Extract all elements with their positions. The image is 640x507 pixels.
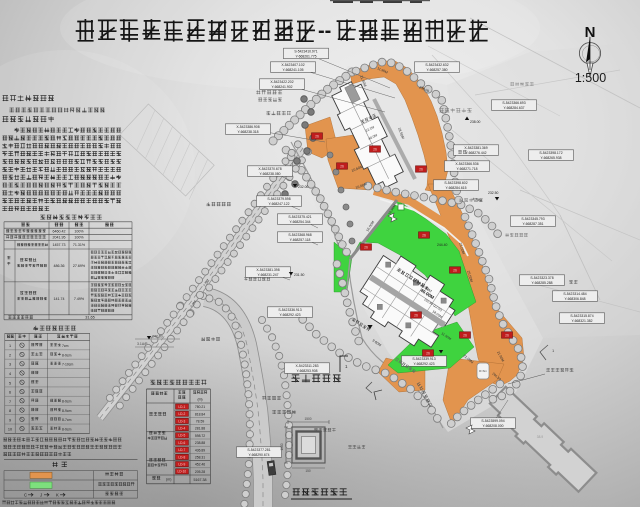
svg-text:8-9cm: 8-9cm [62,400,72,404]
svg-text:141.74: 141.74 [54,297,65,301]
svg-text:X-5423366.536: X-5423366.536 [455,162,478,166]
svg-text:6: 6 [9,391,11,395]
svg-text:S-5423323.378: S-5423323.378 [530,276,553,280]
svg-text:258.31: 258.31 [195,456,205,460]
svg-text:Y-668321.382: Y-668321.382 [572,319,593,323]
svg-text:818.84: 818.84 [195,412,205,416]
svg-text:26: 26 [463,333,467,337]
svg-text:242.30: 242.30 [152,335,163,339]
svg-text:LD-10: LD-10 [177,470,186,474]
svg-text:231.50: 231.50 [294,273,304,277]
svg-text:Y-668241.902: Y-668241.902 [272,85,293,89]
svg-text:26: 26 [505,333,509,337]
svg-text:(m): (m) [166,478,171,482]
svg-text:26: 26 [419,167,423,171]
svg-text:S-5423339.913: S-5423339.913 [412,357,435,361]
svg-text:100%: 100% [74,230,84,234]
svg-text:LD-1: LD-1 [178,405,185,409]
svg-text:X-5423381.398: X-5423381.398 [256,268,279,272]
svg-text:598.72: 598.72 [195,434,205,438]
svg-text:S-5423410.971: S-5423410.971 [294,50,317,54]
svg-text:2041.95: 2041.95 [53,236,66,240]
svg-text:Y-668231.247: Y-668231.247 [258,273,279,277]
svg-text:6460.42: 6460.42 [53,230,66,234]
svg-text:Y-668284.615: Y-668284.615 [446,186,467,190]
svg-text:Y-668257.380: Y-668257.380 [427,68,448,72]
svg-text:X-5423407.102: X-5423407.102 [281,63,304,67]
svg-text:S-5423377.281: S-5423377.281 [247,448,270,452]
svg-text:Y-668271.718: Y-668271.718 [457,167,478,171]
svg-text:K: K [56,493,59,498]
svg-text:780.21: 780.21 [195,405,205,409]
svg-text:5: 5 [9,381,11,385]
svg-text:J: J [40,493,42,498]
svg-text:436.89: 436.89 [195,448,205,452]
svg-text:X-5423311.283: X-5423311.283 [296,364,319,368]
svg-text:Y-668287.351: Y-668287.351 [523,222,544,226]
svg-text:X-5423386.908: X-5423386.908 [236,125,259,129]
svg-text:Y-668238.080: Y-668238.080 [260,172,281,176]
svg-text:26: 26 [453,268,457,272]
svg-text:26: 26 [373,147,377,151]
svg-text:3.1A/P: 3.1A/P [137,342,148,346]
svg-text:452.46: 452.46 [195,463,205,467]
svg-text:8-9cm: 8-9cm [62,409,72,413]
svg-text:238.88: 238.88 [195,441,205,445]
svg-text:1:500: 1:500 [575,71,606,85]
svg-text:Y-668257.118: Y-668257.118 [290,238,311,242]
svg-text:Y-668292.423: Y-668292.423 [280,313,301,317]
svg-text:S-5423345.793: S-5423345.793 [521,217,544,221]
svg-text:1500: 1500 [280,443,284,450]
svg-text:Y-668276.442: Y-668276.442 [466,151,487,155]
svg-text:S-5423315.874: S-5423315.874 [570,314,593,318]
svg-text:8: 8 [9,409,11,413]
svg-text:8-7cm: 8-7cm [62,418,72,422]
svg-text:Y-668290.674: Y-668290.674 [249,453,270,457]
svg-text:7-10cm: 7-10cm [62,363,73,367]
svg-text:S-5423398.602: S-5423398.602 [444,181,467,185]
svg-text:LD-6: LD-6 [178,441,185,445]
svg-text:1457.73: 1457.73 [53,243,66,247]
svg-text:31.65: 31.65 [85,316,95,320]
svg-text:Y-668247.122: Y-668247.122 [269,202,290,206]
svg-text:5167.38: 5167.38 [194,478,207,482]
svg-text:Y-668261.775: Y-668261.775 [296,54,317,58]
svg-text:Y-668306.848: Y-668306.848 [565,297,586,301]
svg-text:7.49%: 7.49% [74,297,85,301]
svg-text:244.40: 244.40 [437,243,447,247]
svg-text:7: 7 [9,400,11,404]
svg-text:S-5423368.968: S-5423368.968 [288,233,311,237]
svg-text:LD-2: LD-2 [178,412,185,416]
svg-text:78.59: 78.59 [196,420,205,424]
svg-text:Y-668238.318: Y-668238.318 [238,130,259,134]
svg-text:S-5423599.094: S-5423599.094 [481,419,504,423]
svg-text:S-5423336.913: S-5423336.913 [278,308,301,312]
svg-text:10: 10 [8,428,12,432]
svg-text:LD-7: LD-7 [178,448,185,452]
svg-text:N: N [585,24,596,41]
svg-text:26: 26 [422,233,426,237]
svg-text:Y-668292.423: Y-668292.423 [414,362,435,366]
svg-text:9: 9 [9,418,11,422]
svg-text:26: 26 [364,245,368,249]
svg-text:71.31%: 71.31% [73,243,86,247]
svg-text:--: -- [318,20,331,42]
svg-text:LD-9: LD-9 [178,463,185,467]
svg-text:238.00: 238.00 [470,120,480,124]
svg-text:LD-3: LD-3 [178,419,185,423]
svg-text:8-9cm: 8-9cm [62,427,72,431]
svg-text:486.36: 486.36 [54,264,65,268]
svg-text:X-5423381.369: X-5423381.369 [464,146,487,150]
svg-text:100%: 100% [74,236,84,240]
svg-text:C: C [24,493,27,498]
svg-text:Y-668285.288: Y-668285.288 [532,281,553,285]
svg-text:2: 2 [9,353,11,357]
svg-text:Y-668284.637: Y-668284.637 [504,106,525,110]
svg-text:281.88: 281.88 [195,427,205,431]
svg-text:Y-668208.000: Y-668208.000 [483,424,504,428]
svg-text:X-5423370.678: X-5423370.678 [258,167,281,171]
svg-text:S-5423379.598: S-5423379.598 [267,197,290,201]
svg-text:1: 1 [9,344,11,348]
svg-text:38-9: 38-9 [537,435,544,439]
svg-text:(m): (m) [197,398,202,402]
svg-text:1500: 1500 [304,417,311,421]
svg-text:LD-4: LD-4 [178,427,185,431]
svg-text:26: 26 [426,351,430,355]
svg-text:R=6m: R=6m [479,369,488,373]
svg-text:X-5423422.202: X-5423422.202 [270,80,293,84]
svg-text:Y-668265.938: Y-668265.938 [541,156,562,160]
svg-text:232.50: 232.50 [488,191,498,195]
svg-text:3: 3 [9,363,11,367]
svg-text:LD-8: LD-8 [178,455,185,459]
svg-text:S-5423366.693: S-5423366.693 [502,101,525,105]
svg-text:232.00: 232.00 [298,185,308,189]
svg-text:Y-668241.105: Y-668241.105 [283,68,304,72]
svg-text:Y-668254.344: Y-668254.344 [290,220,311,224]
svg-text:LD-5: LD-5 [178,434,185,438]
svg-text:S-5423398.172: S-5423398.172 [539,151,562,155]
svg-text:7cm: 7cm [62,344,69,348]
svg-text:Y-668253.908: Y-668253.908 [297,369,318,373]
svg-text:205.28: 205.28 [195,470,205,474]
svg-text:S-5423314.484: S-5423314.484 [563,292,586,296]
svg-text:S-5423375.421: S-5423375.421 [288,215,311,219]
svg-text:4: 4 [9,372,11,376]
svg-text:S-5423432.632: S-5423432.632 [425,63,448,67]
svg-text:26: 26 [414,313,418,317]
svg-text:150: 150 [305,469,311,473]
svg-text:27.69%: 27.69% [73,264,86,268]
svg-text:8-9cm: 8-9cm [62,353,72,357]
svg-text:26: 26 [340,164,344,168]
svg-text:26: 26 [315,134,319,138]
